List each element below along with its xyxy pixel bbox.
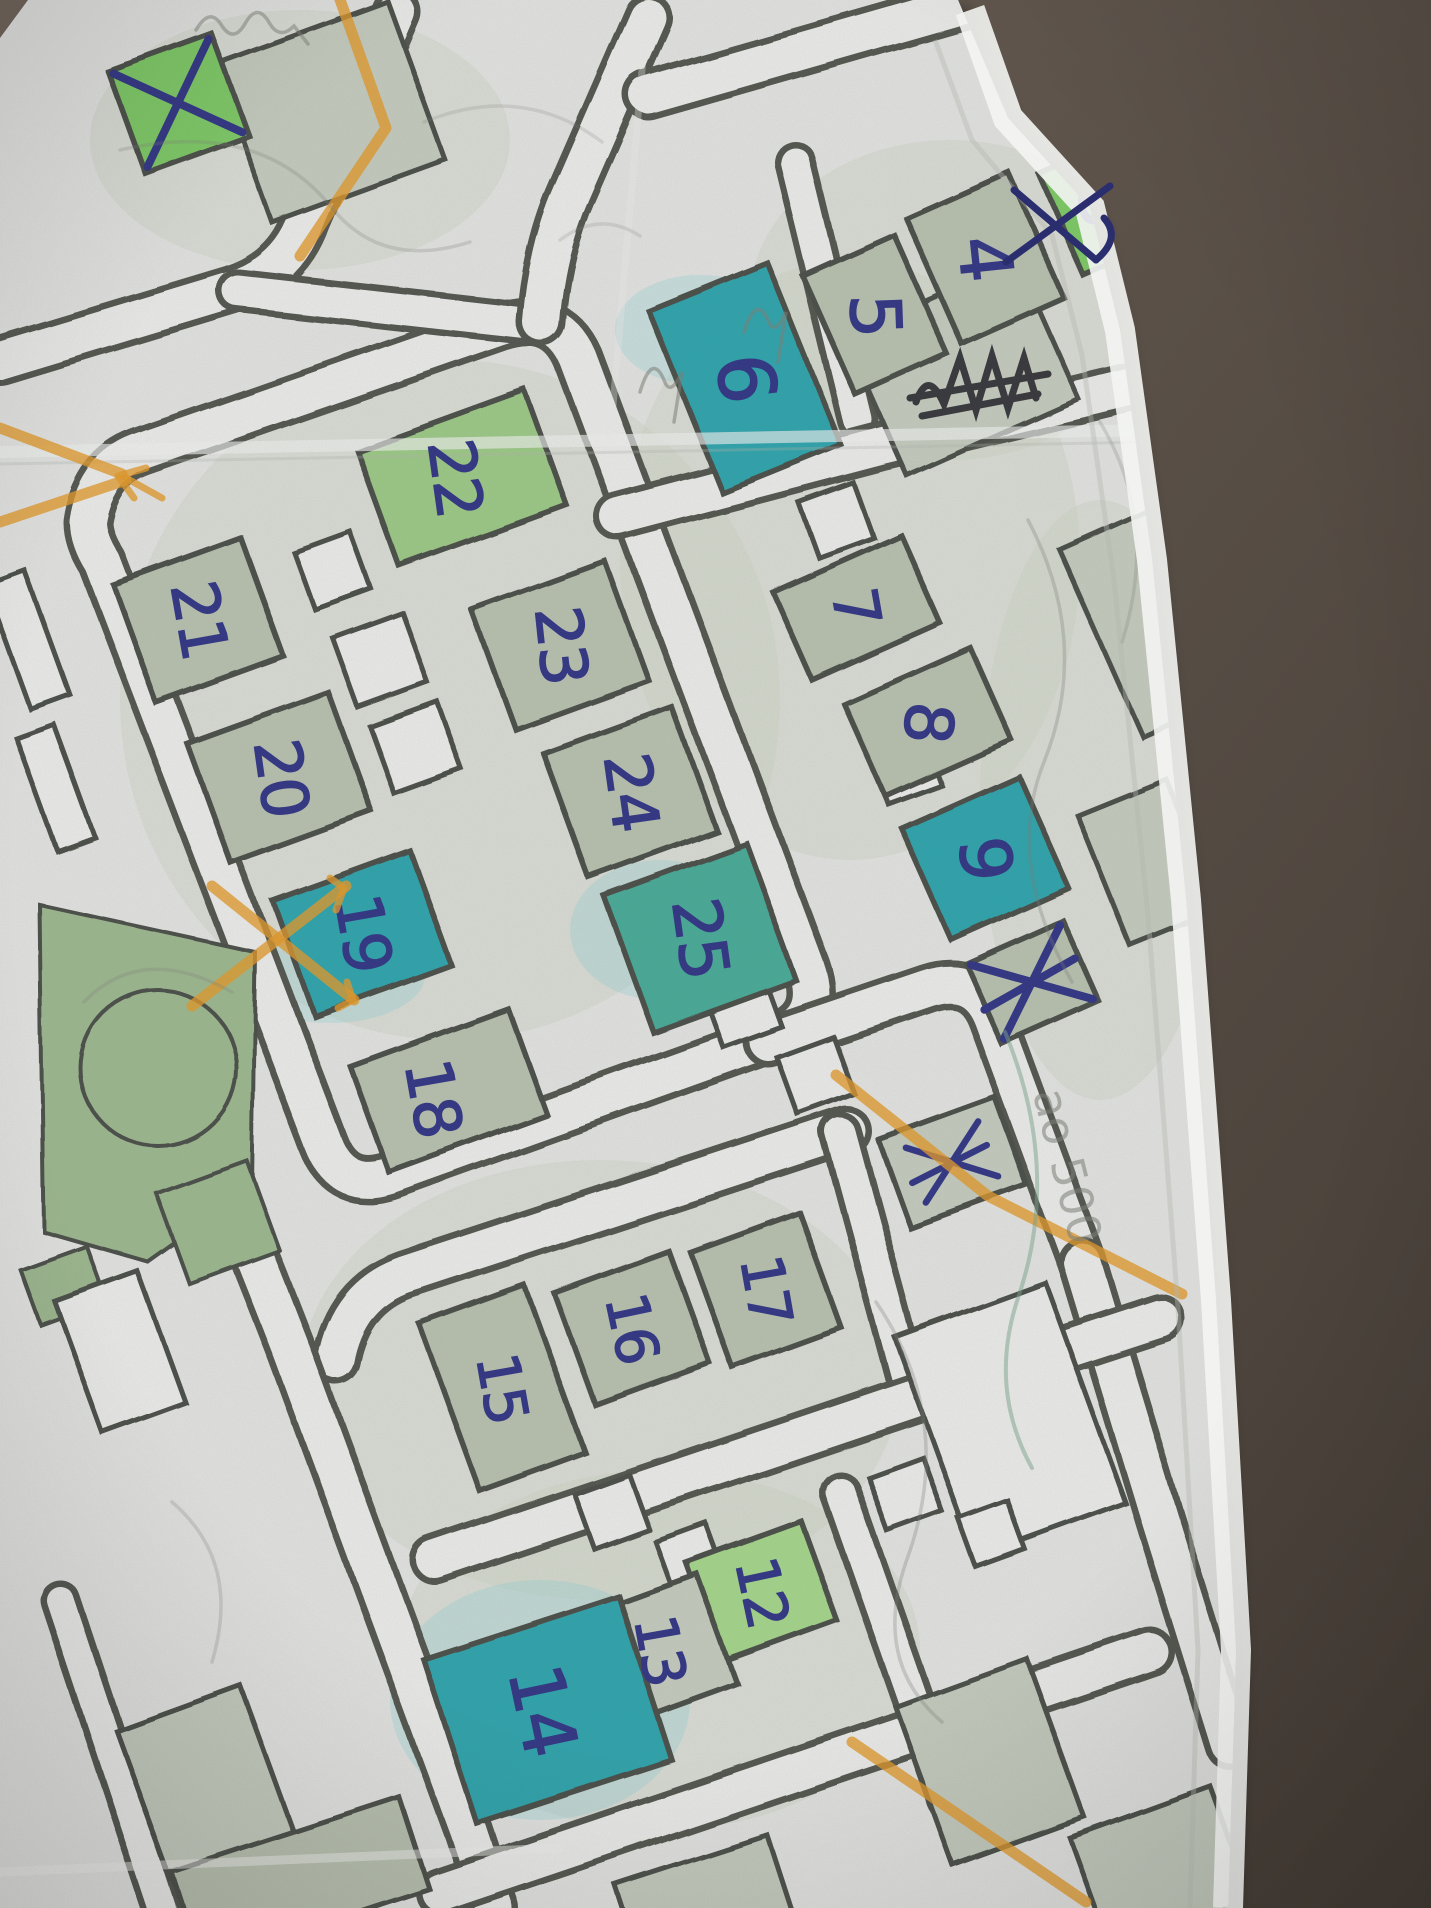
photo-of-annotated-paper-map: 34567892223242521201918151617121314ao 50…: [0, 0, 1431, 1908]
map-canvas: 34567892223242521201918151617121314ao 50…: [0, 0, 1431, 1908]
photo-vignette: [0, 0, 1431, 1908]
